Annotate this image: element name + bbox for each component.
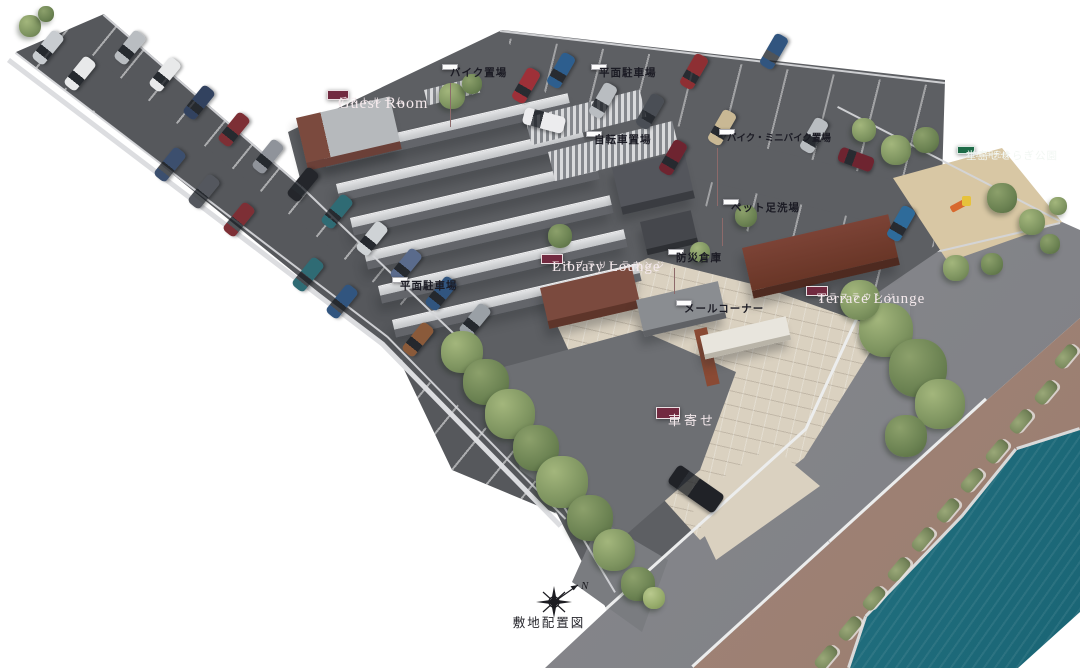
label-text: 平面駐車場 bbox=[599, 67, 657, 81]
car bbox=[635, 92, 666, 131]
promenade-planter bbox=[813, 643, 840, 668]
label-text-ja: ゲストルーム bbox=[338, 96, 407, 107]
label-text: バイク置場 bbox=[450, 67, 507, 81]
label-guest-room: Guest Room ゲストルーム bbox=[327, 90, 349, 100]
label-pet-foot-wash: ペット足洗場 bbox=[723, 199, 739, 205]
label-library-lounge: Library Lounge ライブラリーラウンジ bbox=[541, 254, 563, 264]
tree bbox=[643, 587, 665, 609]
tree bbox=[913, 127, 939, 153]
label-text: ペット足洗場 bbox=[731, 202, 800, 216]
label-text: 自転車置場 bbox=[594, 134, 652, 148]
car bbox=[401, 321, 435, 358]
promenade-planter bbox=[1033, 378, 1060, 406]
tree bbox=[19, 15, 41, 37]
fence-line bbox=[301, 186, 468, 347]
label-surface-parking-north: 平面駐車場 bbox=[591, 64, 607, 70]
label-bike-parking: バイク置場 bbox=[442, 64, 458, 70]
leader-pet-foot-wash bbox=[722, 218, 723, 246]
car bbox=[546, 51, 577, 90]
car bbox=[511, 66, 542, 105]
tree bbox=[1040, 234, 1060, 254]
leader-moto-parking bbox=[717, 148, 718, 206]
label-text-ja: ライブラリーラウンジ bbox=[552, 260, 667, 271]
curb-line bbox=[691, 541, 830, 668]
site-plan-illustration: バイク置場 平面駐車場 自転車置場 バイク・ミニバイク置場 ペット足洗場 防災倉… bbox=[0, 0, 1080, 668]
label-porte-cochere: 車寄せ bbox=[656, 407, 680, 419]
leader-bike-parking bbox=[450, 83, 451, 127]
car bbox=[658, 138, 689, 177]
promenade-planter bbox=[910, 525, 937, 553]
tree bbox=[852, 118, 876, 142]
label-moto-minibike-parking: バイク・ミニバイク置場 bbox=[719, 129, 735, 135]
car bbox=[522, 107, 567, 134]
decorations bbox=[0, 0, 1080, 668]
car bbox=[588, 81, 619, 120]
car bbox=[354, 220, 388, 257]
promenade-planter bbox=[1008, 407, 1035, 435]
promenade-planter bbox=[1053, 342, 1080, 370]
plan-caption: 敷地配置図 bbox=[513, 612, 586, 631]
label-text: 防災倉庫 bbox=[676, 252, 722, 266]
label-text-ja: テラスラウンジ bbox=[817, 292, 897, 303]
label-disaster-storage: 防災倉庫 bbox=[668, 249, 684, 255]
tree bbox=[981, 253, 1003, 275]
label-bicycle-parking: 自転車置場 bbox=[586, 131, 602, 137]
compass-north-label: N bbox=[580, 580, 589, 592]
tree bbox=[1019, 209, 1045, 235]
leader-disaster-storage bbox=[674, 268, 675, 294]
car bbox=[679, 52, 710, 91]
tree bbox=[439, 83, 465, 109]
label-park: 2025年完成 堂島せせらぎ公園 bbox=[957, 146, 975, 154]
car bbox=[147, 56, 181, 93]
seawall-edge bbox=[1016, 427, 1080, 450]
label-mail-corner: メールコーナー bbox=[676, 300, 692, 306]
label-text: 平面駐車場 bbox=[400, 280, 458, 294]
label-terrace-lounge: Terrace Lounge テラスラウンジ bbox=[806, 286, 828, 296]
label-text: バイク・ミニバイク置場 bbox=[727, 132, 831, 146]
label-park-name: 堂島せせらぎ公園 bbox=[966, 150, 1058, 163]
car bbox=[667, 464, 725, 514]
car bbox=[837, 146, 876, 172]
tree bbox=[885, 415, 927, 457]
car bbox=[153, 146, 187, 183]
tree bbox=[987, 183, 1017, 213]
tree bbox=[548, 224, 572, 248]
tree bbox=[1049, 197, 1067, 215]
label-text: メールコーナー bbox=[684, 303, 764, 317]
label-text: 車寄せ bbox=[668, 413, 716, 428]
tree bbox=[943, 255, 969, 281]
label-surface-parking-west: 平面駐車場 bbox=[392, 277, 408, 283]
tree bbox=[881, 135, 911, 165]
tree bbox=[38, 6, 54, 22]
car bbox=[63, 55, 97, 92]
car bbox=[886, 204, 917, 243]
tree bbox=[593, 529, 635, 571]
